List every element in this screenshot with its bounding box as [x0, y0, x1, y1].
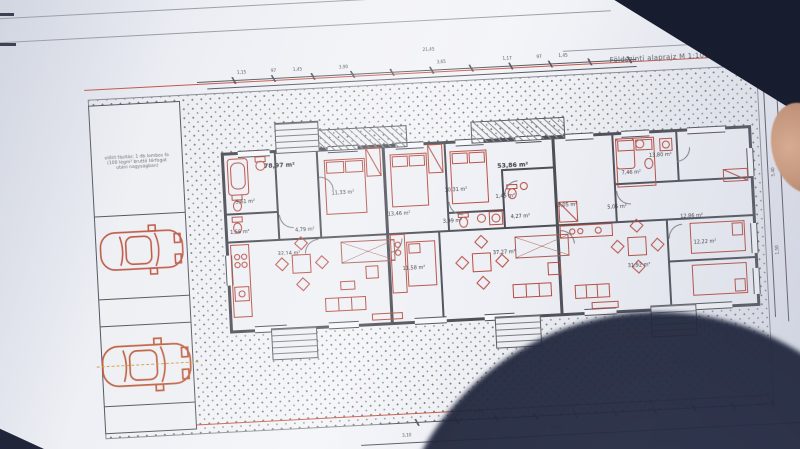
dimension-value: 97: [271, 69, 277, 74]
sink: [520, 182, 527, 189]
dimension-total: 21,45: [422, 47, 434, 52]
room-area-label: 12,22 m²: [693, 238, 716, 245]
sheet-border-line: [0, 0, 606, 20]
room-area-label: 1,56 m²: [230, 229, 250, 236]
room-area-label: 13,46 m²: [388, 210, 411, 217]
wardrobe: [366, 148, 381, 177]
parking-bay-line: [105, 402, 195, 408]
sheet-border-line: [0, 10, 611, 44]
dimension-value: 5,40: [771, 167, 776, 177]
kitchen-counter: [560, 223, 613, 238]
room-area-label: 1,45 m²: [495, 193, 515, 200]
dining-set: [455, 234, 510, 290]
room-area-label: 4,27 m²: [510, 213, 530, 220]
bathtub: [227, 158, 249, 195]
room-area-label: 11,58 m²: [402, 265, 425, 272]
dimension-value: 1,17: [502, 56, 512, 61]
wardrobe: [428, 144, 443, 173]
wardrobe: [723, 168, 748, 181]
sofa: [575, 284, 610, 299]
paper-edge-mark: [0, 43, 16, 46]
parking-strip: előírt fásítás: 1 db lombos fa (100 légm…: [88, 101, 197, 434]
washing-machine: [489, 211, 503, 225]
dimension-value: 3,65: [436, 60, 446, 65]
washing-machine: [660, 138, 673, 151]
bed: [407, 241, 437, 286]
kitchen-counter: [390, 234, 407, 293]
dimension-value: 1,50: [775, 245, 780, 255]
entrance-stair: [271, 326, 319, 360]
dimension-value: 97: [536, 55, 542, 60]
room-area-label: 32,14 m²: [278, 250, 301, 257]
room-area-label: 37,27 m²: [493, 249, 516, 256]
room-area-label: 3,99 m²: [443, 218, 463, 225]
car-icon: [97, 217, 186, 283]
dimension-value: 1,45: [558, 53, 568, 58]
sink: [477, 214, 485, 222]
armchair: [548, 262, 561, 275]
photo-of-floor-plan: Földszinti alaprajz M 1:100 1,15 97 1,45…: [0, 0, 800, 449]
bed: [390, 153, 429, 207]
sink: [636, 140, 644, 148]
room-area-label: 5,05 m²: [607, 204, 627, 211]
parking-bay-line: [99, 295, 189, 301]
bed: [692, 262, 747, 295]
dining-set: [274, 236, 329, 292]
bed: [450, 150, 489, 204]
bed: [324, 158, 367, 214]
room-area-label: 5,61 m²: [235, 198, 255, 205]
paper-edge-mark: [0, 13, 14, 16]
dimension-value: 3,10: [402, 433, 412, 438]
dimension-value: 3,90: [339, 65, 349, 70]
toilet: [645, 158, 654, 168]
armchair: [366, 266, 379, 279]
kitchen-counter: [231, 245, 253, 318]
bed: [690, 221, 745, 254]
dimension-value: 1,45: [293, 67, 303, 72]
entrance-stair: [274, 121, 320, 154]
side-note: előírt fásítás: 1 db lombos fa (100 légm…: [97, 152, 178, 171]
sofa: [325, 280, 366, 311]
cabinet: [592, 301, 618, 308]
dimension-value: 1,15: [237, 70, 247, 75]
sofa: [513, 283, 552, 298]
parking-bay-line: [101, 322, 191, 328]
room-area-label: 4,79 m²: [295, 226, 315, 233]
room-area-label: 7,46 m²: [621, 169, 641, 176]
cabinet: [372, 313, 402, 321]
bathtub: [616, 138, 636, 169]
